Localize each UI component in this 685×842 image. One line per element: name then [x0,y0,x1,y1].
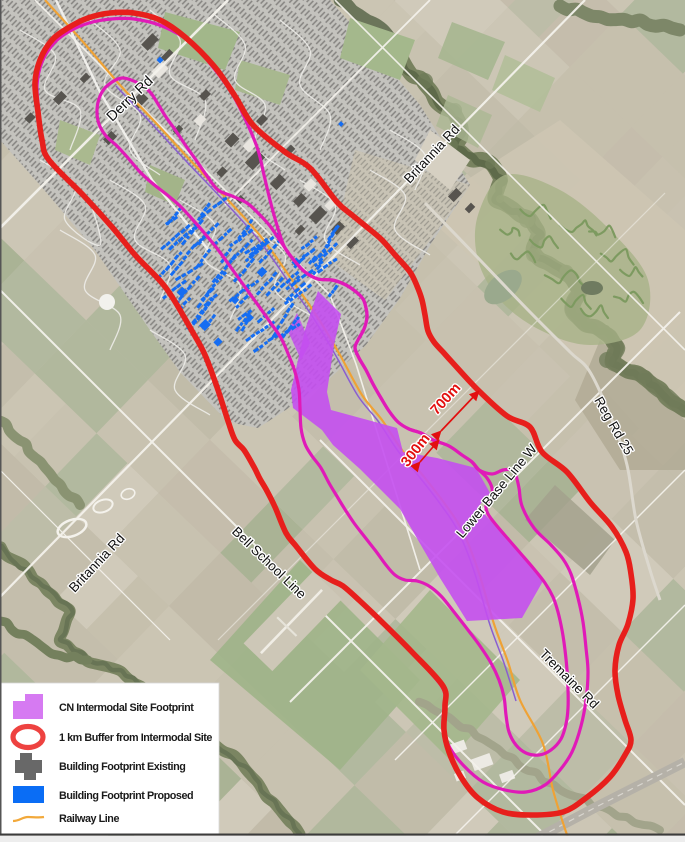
svg-text:1 km Buffer from Intermodal Si: 1 km Buffer from Intermodal Site [59,732,212,744]
svg-text:Building Footprint Proposed: Building Footprint Proposed [59,790,193,802]
svg-text:Railway Line: Railway Line [59,813,119,825]
svg-text:Building Footprint Existing: Building Footprint Existing [59,761,185,773]
svg-text:CN Intermodal Site Footprint: CN Intermodal Site Footprint [59,702,194,714]
